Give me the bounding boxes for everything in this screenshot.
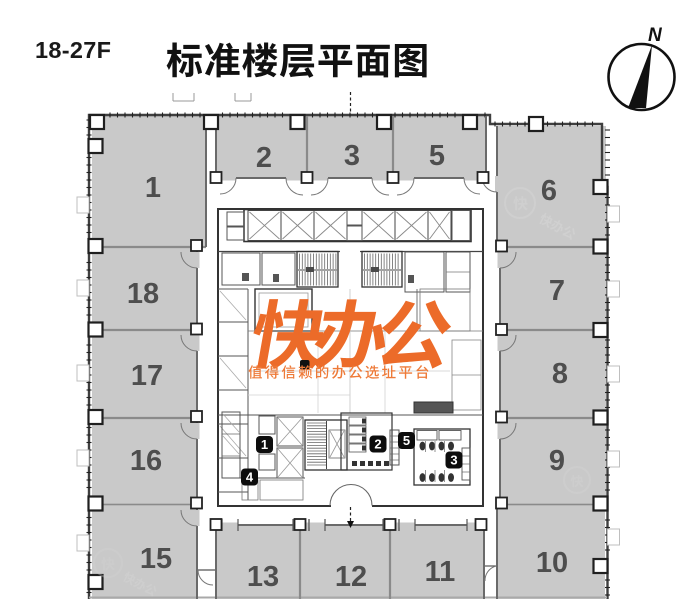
- svg-text:N: N: [648, 25, 663, 46]
- svg-text:10: 10: [536, 547, 568, 579]
- svg-text:1: 1: [145, 172, 161, 204]
- svg-text:2: 2: [374, 437, 381, 452]
- svg-text:2: 2: [256, 142, 272, 174]
- svg-text:1: 1: [261, 437, 268, 452]
- svg-text:5: 5: [429, 140, 445, 172]
- svg-text:3: 3: [344, 140, 360, 172]
- svg-text:15: 15: [140, 543, 172, 575]
- svg-text:7: 7: [549, 275, 565, 307]
- svg-text:17: 17: [131, 360, 163, 392]
- svg-text:8: 8: [552, 358, 568, 390]
- svg-text:13: 13: [247, 561, 279, 593]
- svg-text:18: 18: [127, 278, 159, 310]
- svg-text:11: 11: [425, 556, 456, 588]
- svg-text:18-27F: 18-27F: [35, 37, 111, 63]
- svg-text:3: 3: [450, 453, 457, 468]
- svg-text:12: 12: [335, 561, 367, 593]
- svg-text:4: 4: [246, 470, 254, 485]
- svg-text:16: 16: [130, 445, 162, 477]
- svg-text:5: 5: [403, 433, 410, 448]
- svg-text:9: 9: [549, 445, 565, 477]
- svg-text:6: 6: [541, 175, 557, 207]
